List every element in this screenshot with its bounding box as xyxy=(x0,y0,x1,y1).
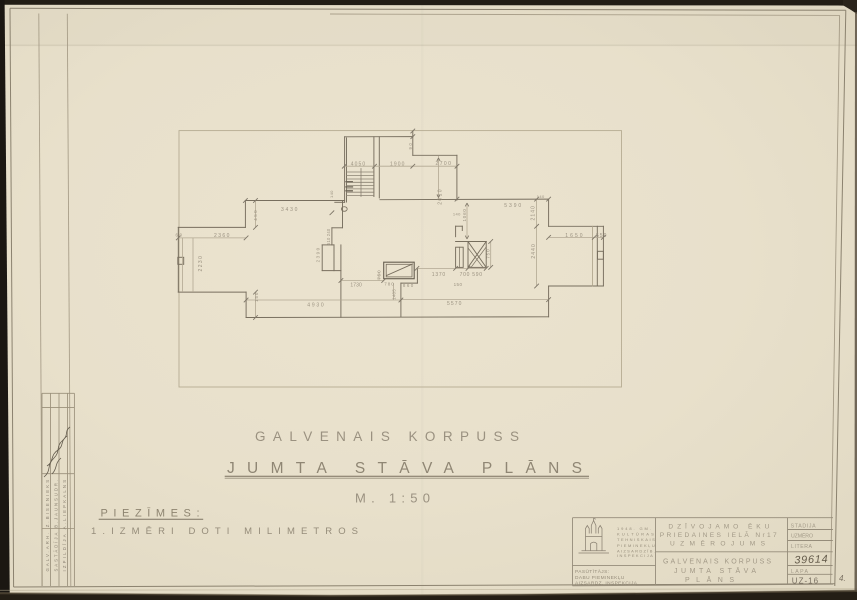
svg-text:1948. GM.: 1948. GM. xyxy=(617,526,651,531)
svg-text:1650: 1650 xyxy=(565,233,583,239)
svg-text:2230: 2230 xyxy=(198,256,204,272)
svg-text:60: 60 xyxy=(176,233,183,238)
svg-text:STADIJA: STADIJA xyxy=(791,523,817,529)
svg-text:JUMTA STĀVA PLĀNS: JUMTA STĀVA PLĀNS xyxy=(227,460,582,477)
svg-text:1730: 1730 xyxy=(350,283,362,289)
svg-text:4050: 4050 xyxy=(351,161,366,167)
svg-text:PASŪTĪTĀJS:: PASŪTĪTĀJS: xyxy=(575,568,609,575)
svg-text:90: 90 xyxy=(408,142,413,149)
svg-text:860: 860 xyxy=(403,283,414,288)
svg-text:LAPA: LAPA xyxy=(791,569,809,575)
svg-text:610: 610 xyxy=(326,237,331,245)
svg-text:5570: 5570 xyxy=(447,301,462,307)
svg-text:GALV.ARH. Z.BISENIEKS: GALV.ARH. Z.BISENIEKS xyxy=(45,480,50,572)
svg-text:1370: 1370 xyxy=(432,272,446,278)
svg-text:GALVENAIS KORPUSS: GALVENAIS KORPUSS xyxy=(663,559,771,566)
svg-text:4930: 4930 xyxy=(307,302,324,308)
svg-text:750: 750 xyxy=(376,270,381,280)
svg-text:DABU PIEMINEKĻU: DABU PIEMINEKĻU xyxy=(575,575,625,581)
svg-text:140: 140 xyxy=(329,190,334,198)
svg-text:3430: 3430 xyxy=(281,207,298,213)
svg-text:5390: 5390 xyxy=(504,203,522,209)
svg-text:INSPEKCIJA: INSPEKCIJA xyxy=(617,553,653,558)
svg-text:140: 140 xyxy=(537,194,545,199)
svg-text:140: 140 xyxy=(453,211,461,216)
svg-text:150: 150 xyxy=(454,282,463,287)
svg-text:1060: 1060 xyxy=(462,209,467,222)
svg-text:450: 450 xyxy=(253,210,258,221)
svg-text:2390: 2390 xyxy=(316,247,321,262)
svg-text:LITERA: LITERA xyxy=(791,544,813,550)
svg-text:PRIEDAINES IELĀ Nr17: PRIEDAINES IELĀ Nr17 xyxy=(660,531,777,539)
svg-text:1900: 1900 xyxy=(390,162,405,168)
svg-text:2360: 2360 xyxy=(214,233,230,239)
svg-text:4.: 4. xyxy=(839,574,846,583)
svg-text:1405: 1405 xyxy=(392,289,397,300)
svg-text:AIZSARDZ. INSPEKCIJA: AIZSARDZ. INSPEKCIJA xyxy=(575,580,638,586)
svg-text:2140: 2140 xyxy=(531,206,537,221)
svg-text:550: 550 xyxy=(596,233,607,239)
svg-text:700 590: 700 590 xyxy=(460,272,483,278)
svg-text:UZMĒRO: UZMĒRO xyxy=(791,532,813,539)
svg-text:TEHNISKAIS: TEHNISKAIS xyxy=(617,537,655,542)
svg-text:780: 780 xyxy=(384,282,394,287)
svg-text:2610: 2610 xyxy=(437,189,443,205)
svg-text:SASTĀDĪJA B.JAUNSUDR.: SASTĀDĪJA B.JAUNSUDR. xyxy=(53,480,58,572)
svg-text:PIEZĪMES:: PIEZĪMES: xyxy=(101,508,200,520)
svg-text:KULTŪRAS: KULTŪRAS xyxy=(617,532,654,537)
svg-text:GALVENAIS KORPUSS: GALVENAIS KORPUSS xyxy=(255,429,519,444)
svg-text:2440: 2440 xyxy=(531,244,537,259)
svg-text:39614: 39614 xyxy=(794,553,828,566)
svg-text:150: 150 xyxy=(254,292,259,302)
svg-text:750: 750 xyxy=(486,249,491,259)
svg-text:2700: 2700 xyxy=(436,161,452,167)
svg-text:UZ-16: UZ-16 xyxy=(792,576,819,585)
svg-text:240: 240 xyxy=(326,228,331,236)
